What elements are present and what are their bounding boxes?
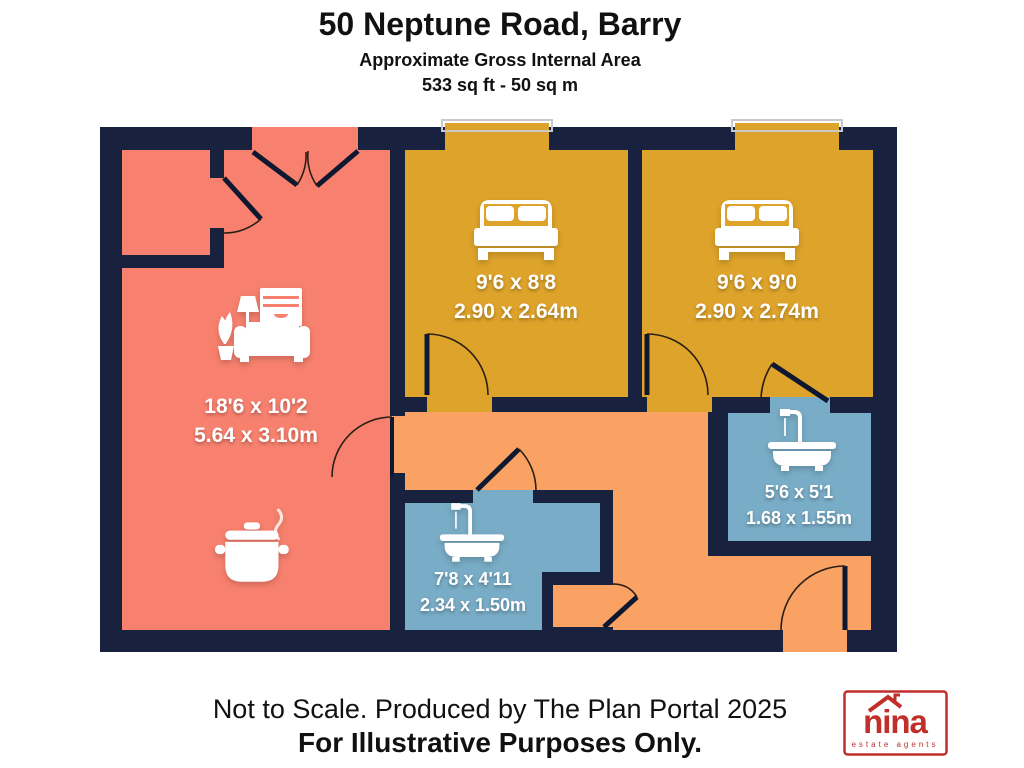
- bedroom-2-window-frame: [731, 119, 843, 132]
- bedroom-2-dims-ft: 9'6 x 9'0: [647, 268, 867, 297]
- agency-logo: nina estate agents: [843, 690, 948, 756]
- bathroom-lower-label: 7'8 x 4'11 2.34 x 1.50m: [383, 566, 563, 618]
- closet-wall-horizontal: [122, 255, 224, 268]
- bathtub-icon: [438, 500, 506, 563]
- closet-wall-block: [210, 228, 224, 258]
- bedroom-2-label: 9'6 x 9'0 2.90 x 2.74m: [647, 268, 867, 326]
- floor-plan: 18'6 x 10'2 5.64 x 3.10m 9'6 x 8'8 2.90 …: [0, 0, 1024, 768]
- cooking-pot-icon: [213, 508, 301, 590]
- bedroom-1-dims-m: 2.90 x 2.64m: [406, 297, 626, 326]
- living-room-door-opening: [390, 416, 405, 473]
- bedroom-1-dims-ft: 9'6 x 8'8: [406, 268, 626, 297]
- bathroom-ensuite-dims-m: 1.68 x 1.55m: [714, 505, 884, 531]
- agency-logo-tagline: estate agents: [851, 740, 938, 749]
- bathroom-ensuite-label: 5'6 x 5'1 1.68 x 1.55m: [714, 479, 884, 531]
- double-bed-icon: [711, 198, 803, 262]
- living-room-dims-m: 5.64 x 3.10m: [146, 421, 366, 450]
- floorplan-page: 50 Neptune Road, Barry Approximate Gross…: [0, 0, 1024, 768]
- hallway: [405, 412, 708, 490]
- sofa-icon: [210, 286, 314, 376]
- bedroom-2-door-opening: [647, 397, 712, 412]
- entrance-opening: [252, 127, 358, 151]
- living-room-dims-ft: 18'6 x 10'2: [146, 392, 366, 421]
- bathroom-lower-dims-ft: 7'8 x 4'11: [383, 566, 563, 592]
- bedroom-1-window-frame: [441, 119, 553, 132]
- double-bed-icon: [470, 198, 562, 262]
- living-room-label: 18'6 x 10'2 5.64 x 3.10m: [146, 392, 366, 450]
- bathroom-ensuite-dims-ft: 5'6 x 5'1: [714, 479, 884, 505]
- closet-wall-stub: [210, 150, 224, 178]
- room-bathroom-lower-ext: [542, 503, 600, 572]
- front-door-opening: [783, 630, 847, 652]
- bedroom-1-door-opening: [427, 397, 492, 412]
- hallway-middle: [613, 490, 708, 630]
- bedroom-2-dims-m: 2.90 x 2.74m: [647, 297, 867, 326]
- bedroom-1-label: 9'6 x 8'8 2.90 x 2.64m: [406, 268, 626, 326]
- hallway-lower: [708, 556, 871, 630]
- bathroom-lower-dims-m: 2.34 x 1.50m: [383, 592, 563, 618]
- bathtub-icon: [766, 406, 838, 472]
